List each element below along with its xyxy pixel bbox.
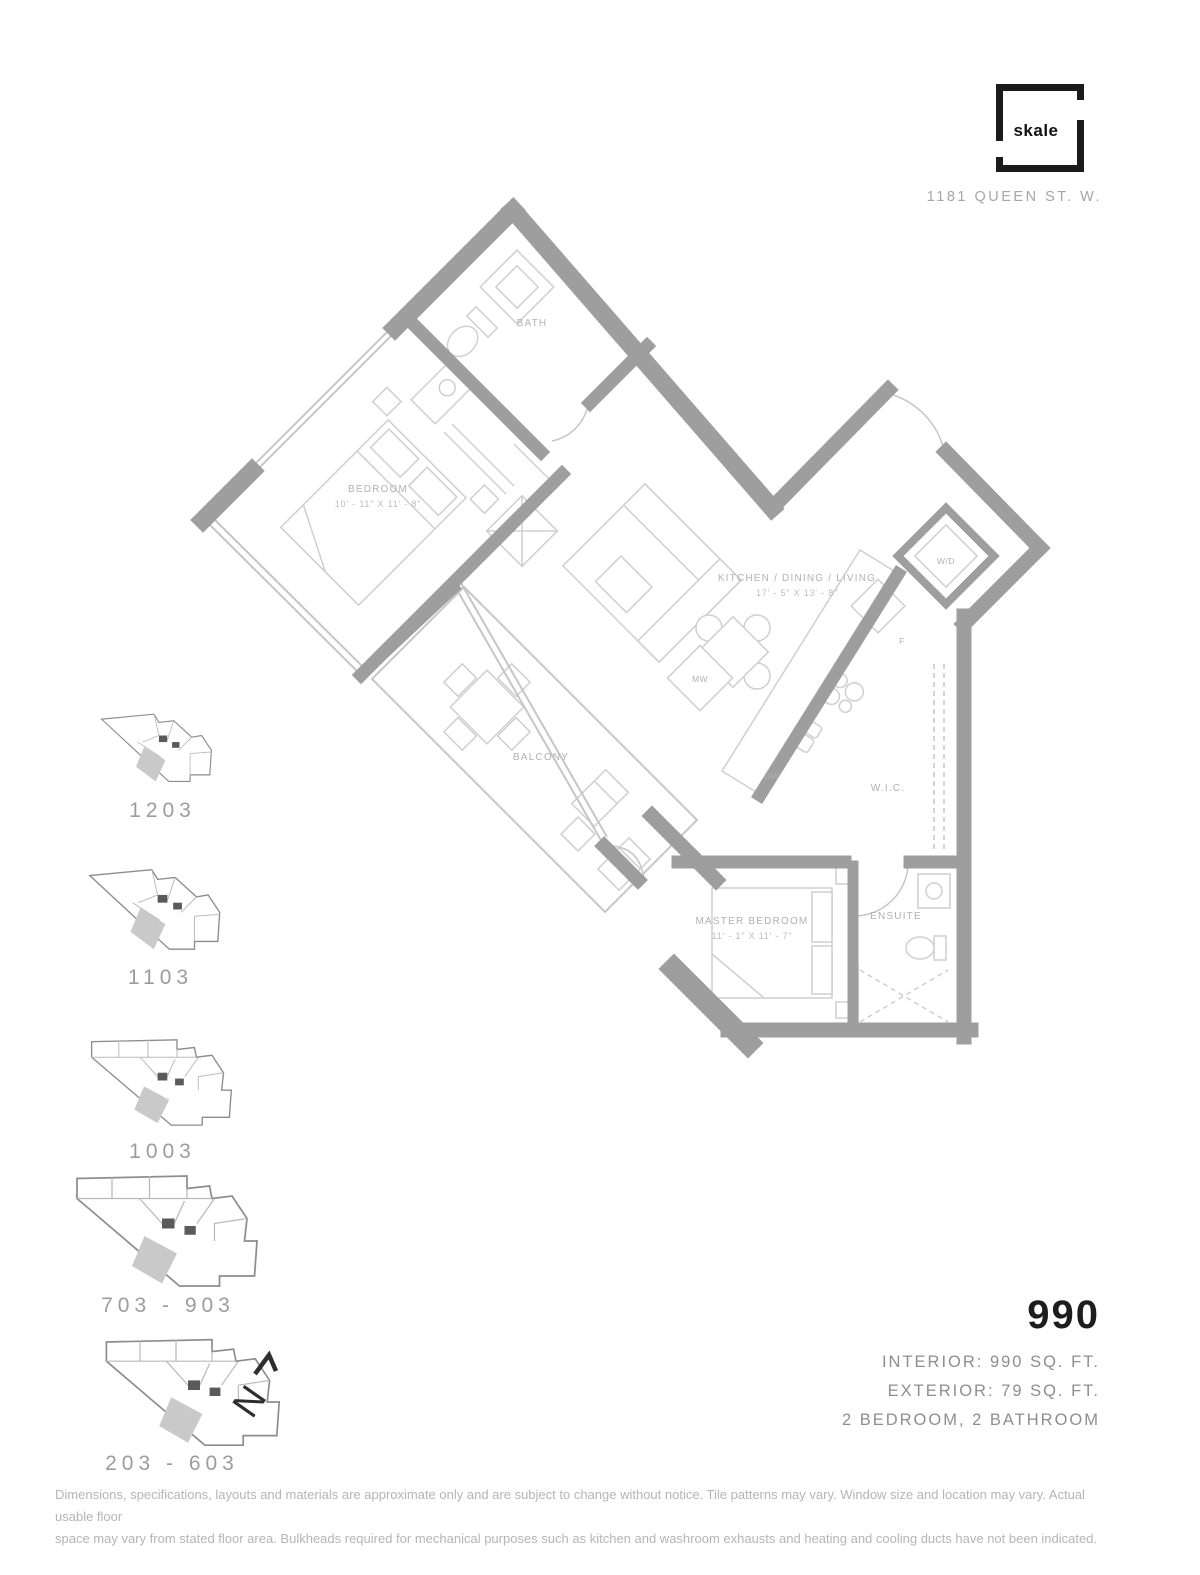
- disclaimer-line-2: space may vary from stated floor area. B…: [55, 1528, 1100, 1550]
- unit-number: 990: [842, 1293, 1100, 1338]
- keyplan-1103: [90, 870, 220, 950]
- keyplan-1003: [92, 1040, 232, 1125]
- fridge-label: F: [899, 636, 905, 646]
- unit-interior-area: INTERIOR: 990 SQ. FT.: [842, 1348, 1100, 1377]
- project-address: 1181 QUEEN ST. W.: [900, 189, 1102, 205]
- washer-dryer-label: W/D: [937, 556, 955, 566]
- keyplan-label-703-903: 703 - 903: [88, 1294, 248, 1318]
- windows: [205, 326, 607, 842]
- keyplan-label-1003: 1003: [100, 1140, 225, 1164]
- unit-info: 990 INTERIOR: 990 SQ. FT. EXTERIOR: 79 S…: [842, 1293, 1100, 1435]
- wic-label: W.I.C.: [871, 783, 905, 794]
- skale-logo-text: skale: [1013, 121, 1058, 140]
- wic-closet-dashes: [934, 664, 944, 850]
- skale-logo: skale: [996, 88, 1084, 170]
- disclaimer: Dimensions, specifications, layouts and …: [55, 1484, 1100, 1550]
- keyplan-703-903: [77, 1176, 257, 1286]
- keyplan-label-1103: 1103: [98, 966, 223, 990]
- keyplan-1203: [102, 714, 212, 781]
- main-floorplan: BATH BEDROOM 10' - 11" X 11' - 8" KITCHE…: [203, 210, 1040, 1043]
- keyplan-label-203-603: 203 - 603: [92, 1452, 252, 1476]
- unit-layout: 2 BEDROOM, 2 BATHROOM: [842, 1406, 1100, 1435]
- living-furniture: [563, 484, 770, 711]
- bedroom-label: BEDROOM: [348, 484, 408, 495]
- north-letter: N: [225, 1379, 275, 1426]
- master-label: MASTER BEDROOM: [696, 916, 809, 927]
- unit-exterior-area: EXTERIOR: 79 SQ. FT.: [842, 1377, 1100, 1406]
- bedroom-dim: 10' - 11" X 11' - 8": [335, 499, 422, 509]
- bath-label: BATH: [517, 318, 548, 329]
- dishwasher-label: DW: [764, 771, 779, 781]
- kitchen-label: KITCHEN / DINING / LIVING: [718, 573, 876, 584]
- master-furniture: [712, 866, 950, 1026]
- microwave-label: MW: [692, 674, 708, 684]
- balcony-label: BALCONY: [513, 752, 569, 763]
- disclaimer-line-1: Dimensions, specifications, layouts and …: [55, 1484, 1100, 1528]
- keyplan-label-1203: 1203: [100, 799, 225, 823]
- master-dim: 11' - 1" X 11' - 7": [712, 931, 793, 941]
- kitchen-dim: 17' - 5" X 13' - 8": [756, 588, 838, 598]
- floorplan-page: BATH BEDROOM 10' - 11" X 11' - 8" KITCHE…: [0, 0, 1200, 1575]
- ensuite-label: ENSUITE: [870, 911, 922, 922]
